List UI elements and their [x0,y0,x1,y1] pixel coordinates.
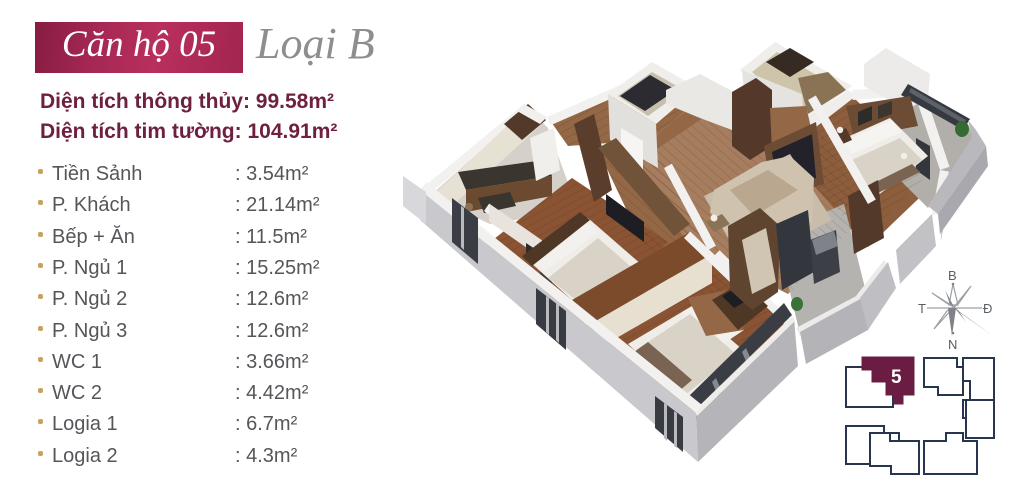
svg-text:N: N [948,337,957,352]
svg-text:B: B [948,268,957,283]
svg-text:Đ: Đ [983,301,992,316]
svg-text:5: 5 [891,367,902,388]
svg-text:T: T [918,301,926,316]
